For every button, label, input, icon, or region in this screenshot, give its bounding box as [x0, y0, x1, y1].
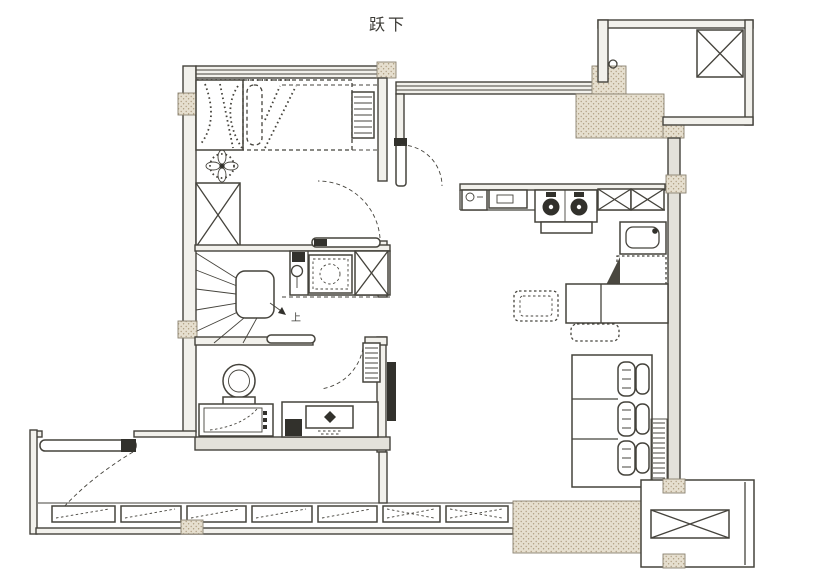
ac-unit-icon	[651, 510, 729, 538]
stair-arrowhead	[278, 307, 286, 315]
wall-pier	[663, 479, 685, 493]
dining-chair	[514, 291, 558, 321]
cabinet-x	[355, 251, 388, 295]
left-outer-wall	[30, 430, 37, 534]
laundry-cabinet	[199, 404, 273, 436]
toilet	[223, 365, 255, 407]
bedside-shelf	[352, 92, 374, 138]
switch-box	[292, 252, 305, 262]
tv	[387, 362, 396, 421]
window-pane	[52, 506, 115, 522]
ceiling-fan-icon	[206, 150, 238, 182]
window-pane	[121, 506, 181, 522]
pillow	[247, 85, 262, 145]
wall-sink	[620, 222, 666, 254]
duct-shaft	[576, 94, 664, 138]
window-pane	[383, 506, 440, 522]
sofa-cushion	[618, 402, 649, 436]
bedroom-right-wall	[378, 78, 387, 181]
bathroom-bottom-wall	[195, 437, 390, 450]
duct-shaft	[592, 66, 626, 94]
radiator	[651, 419, 667, 485]
vanity-basin	[282, 402, 378, 437]
counter-cabinet	[462, 190, 487, 210]
window-pane	[252, 506, 312, 522]
wall-pier	[377, 62, 396, 78]
balcony-outer-wall	[36, 528, 513, 534]
floorplan-drawing: 跃下	[0, 0, 838, 578]
bedroom-window	[196, 66, 386, 78]
entry-window	[396, 82, 593, 94]
window-pane	[446, 506, 508, 522]
bedroom-door	[312, 181, 380, 247]
entry-door	[394, 138, 442, 186]
sofa-cushion	[618, 441, 649, 475]
corner-shelf	[363, 343, 380, 382]
wall-pier	[666, 175, 686, 193]
kitchen-cabinets	[598, 189, 664, 210]
bathroom	[199, 343, 380, 437]
closet-cabinet	[196, 183, 240, 247]
kitchen-sink	[489, 190, 527, 208]
wall-pier	[663, 554, 685, 568]
balcony-divider-wall	[379, 452, 387, 503]
bathroom-door	[267, 335, 363, 389]
gas-stove	[535, 190, 597, 233]
hall-wall	[396, 94, 404, 143]
floorplan-page: 跃下	[0, 0, 838, 578]
wall-pier	[178, 93, 197, 115]
window-pane	[318, 506, 377, 522]
ac-platform-south	[641, 479, 754, 568]
dining-table	[566, 284, 668, 323]
wall-pier	[178, 321, 197, 338]
neighbor-wall-mass	[513, 501, 641, 553]
laundry-counter	[282, 251, 390, 297]
sofa-cushion	[618, 362, 649, 396]
dining-area	[514, 284, 668, 341]
dining-bench	[571, 324, 619, 341]
balcony-door	[40, 439, 136, 508]
balcony-windows	[36, 503, 513, 534]
wardrobe	[196, 80, 243, 150]
stair-handrail	[236, 271, 274, 318]
sofa	[572, 355, 652, 487]
ac-unit-icon	[697, 30, 743, 77]
level-title: 跃下	[369, 15, 407, 34]
washing-machine	[309, 255, 352, 293]
left-wall	[183, 66, 196, 432]
stair-direction-label: 上	[291, 312, 301, 324]
wall-pier	[181, 520, 203, 534]
bedroom	[196, 80, 378, 247]
balcony-top-wall	[134, 431, 196, 437]
